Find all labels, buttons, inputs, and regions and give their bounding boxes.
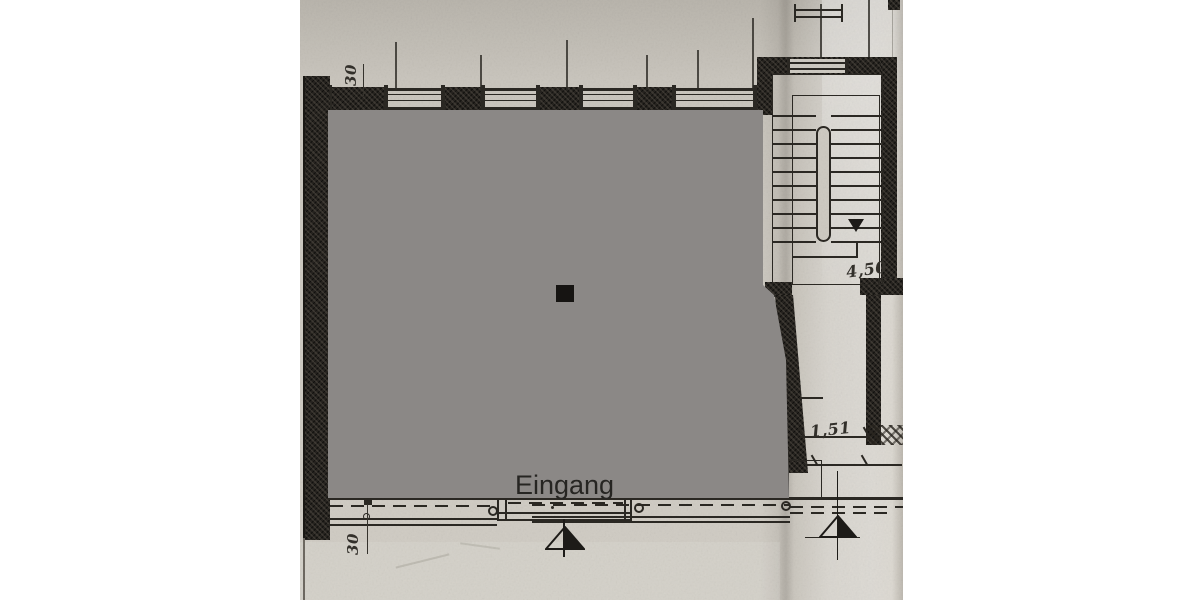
canvas: 30 4,50 1,51 xyxy=(0,0,1200,600)
paper-sheet: 30 4,50 1,51 xyxy=(300,0,903,600)
privacy-square xyxy=(556,285,574,302)
entrance-label: Eingang xyxy=(497,470,632,501)
room-privacy-overlay xyxy=(328,110,789,498)
